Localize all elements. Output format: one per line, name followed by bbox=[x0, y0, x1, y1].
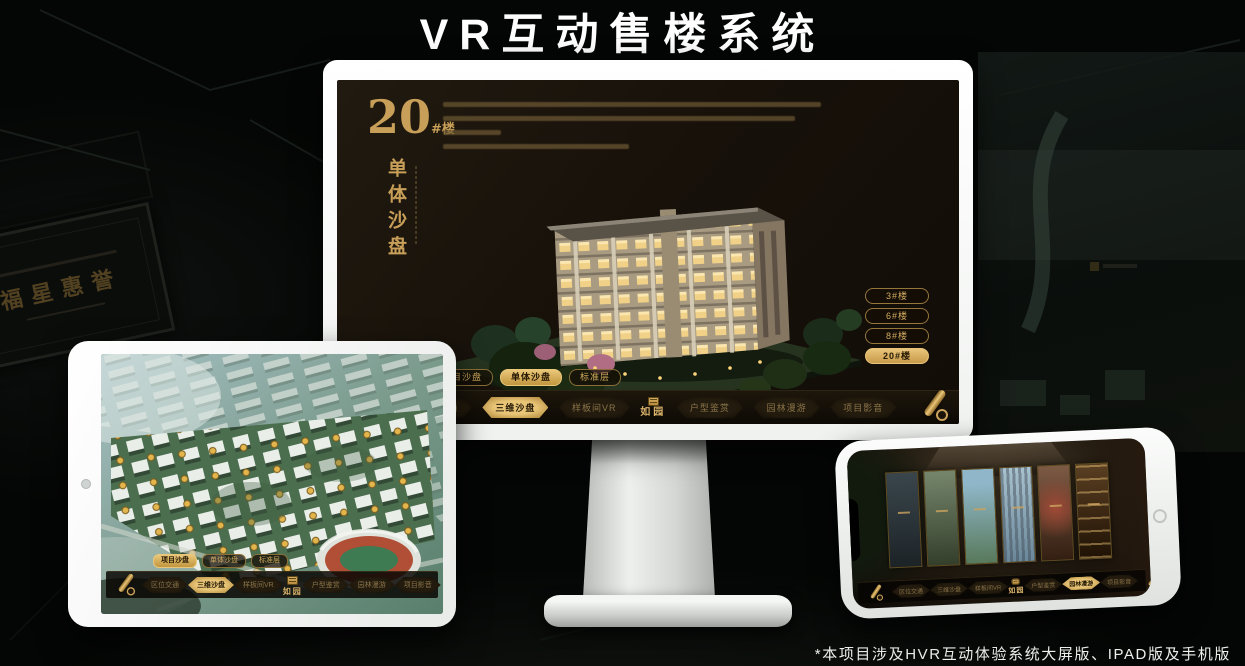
floor-button-group: 3#楼 6#楼 8#楼 20#楼 bbox=[865, 288, 929, 364]
tablet-nav-item-location[interactable]: 区位交通 bbox=[142, 577, 188, 593]
floor-button-8[interactable]: 8#楼 bbox=[865, 328, 929, 344]
subtab-standard-floor[interactable]: 标准层 bbox=[569, 369, 621, 386]
block-subtitle-english bbox=[415, 166, 417, 244]
nav-item-3d-sandtable[interactable]: 三维沙盘 bbox=[482, 397, 548, 418]
floor-button-6[interactable]: 6#楼 bbox=[865, 308, 929, 324]
phone-nav-item-3d-sandtable[interactable]: 三维沙盘 bbox=[930, 582, 969, 597]
tablet-nav-item-floorplan[interactable]: 户型鉴赏 bbox=[303, 577, 349, 593]
tablet-subtab-standard-floor[interactable]: 标准层 bbox=[251, 554, 288, 568]
tablet-nav-item-project-video[interactable]: 项目影音 bbox=[395, 577, 441, 593]
phone-screen: 区位交通 三维沙盘 样板间VR 如园 户型鉴赏 园林漫游 项目影音 bbox=[847, 438, 1152, 609]
phone-brand-seal-icon bbox=[1012, 579, 1020, 585]
tablet-screen: 项目沙盘 单体沙盘 标准层 区位交通 三维沙盘 样板间VR 如园 户型鉴赏 园林… bbox=[101, 354, 443, 614]
background-mini-logo bbox=[1090, 262, 1099, 271]
phone-menu-scroll-left-icon[interactable] bbox=[867, 583, 884, 601]
plaque-text: 福星惠誉 bbox=[0, 259, 125, 316]
nav-item-garden-tour[interactable]: 园林漫游 bbox=[754, 397, 820, 418]
gallery-panel-4[interactable] bbox=[999, 466, 1036, 563]
phone-camera-icon bbox=[1153, 509, 1168, 524]
tablet-brand-logo[interactable]: 如园 bbox=[283, 576, 303, 595]
tablet-nav-item-model-room-vr[interactable]: 样板间VR bbox=[234, 577, 283, 593]
brand-seal-icon bbox=[648, 397, 659, 406]
description-paragraph bbox=[443, 102, 843, 158]
subtab-single-sandtable[interactable]: 单体沙盘 bbox=[500, 369, 562, 386]
tablet-subtab-row: 项目沙盘 单体沙盘 标准层 bbox=[153, 554, 288, 568]
tablet-brand-seal-icon bbox=[287, 576, 298, 585]
block-title: 20#楼 bbox=[367, 94, 455, 140]
phone-nav-item-garden-tour[interactable]: 园林漫游 bbox=[1062, 576, 1101, 591]
tablet-nav-item-garden-tour[interactable]: 园林漫游 bbox=[349, 577, 395, 593]
phone-nav-item-floorplan[interactable]: 户型鉴赏 bbox=[1024, 578, 1063, 593]
footnote: *本项目涉及HVR互动体验系统大屏版、IPAD版及手机版 bbox=[815, 643, 1231, 664]
tablet-subtab-single-sandtable[interactable]: 单体沙盘 bbox=[202, 554, 246, 568]
tablet-menu-scroll-left-icon[interactable] bbox=[115, 573, 137, 597]
tablet-nav-bar: 区位交通 三维沙盘 样板间VR 如园 户型鉴赏 园林漫游 项目影音 bbox=[106, 571, 438, 598]
gallery-panel-5[interactable] bbox=[1037, 464, 1074, 561]
gallery-panel-3[interactable] bbox=[961, 468, 998, 565]
nav-item-model-room-vr[interactable]: 样板间VR bbox=[559, 397, 630, 418]
menu-scroll-icon[interactable] bbox=[919, 389, 951, 423]
nav-item-project-video[interactable]: 项目影音 bbox=[830, 397, 896, 418]
floor-button-3[interactable]: 3#楼 bbox=[865, 288, 929, 304]
brand-logo[interactable]: 如园 bbox=[640, 397, 666, 418]
monitor-stand-neck bbox=[583, 438, 715, 598]
tablet-subtab-project-sandtable[interactable]: 项目沙盘 bbox=[153, 554, 197, 568]
monitor-stand-base bbox=[544, 595, 792, 627]
page-title: VR互动售楼系统 bbox=[0, 0, 1245, 62]
phone-device: 区位交通 三维沙盘 样板间VR 如园 户型鉴赏 园林漫游 项目影音 bbox=[834, 426, 1182, 619]
block-number: 20 bbox=[367, 90, 431, 144]
phone-menu-scroll-right-icon[interactable] bbox=[1145, 571, 1151, 589]
phone-brand-logo-text: 如园 bbox=[1008, 586, 1024, 594]
tablet-camera-icon bbox=[81, 479, 91, 489]
block-subtitle-vertical: 单体沙盘 bbox=[383, 158, 410, 262]
stage: 福星惠誉 VR互动售楼系统 20#楼 单体沙盘 bbox=[0, 0, 1245, 666]
brand-logo-text: 如园 bbox=[640, 408, 666, 418]
phone-nav-item-model-room-vr[interactable]: 样板间VR bbox=[968, 580, 1009, 595]
gallery-panel-1[interactable] bbox=[885, 471, 922, 568]
phone-nav-item-project-video[interactable]: 项目影音 bbox=[1100, 574, 1139, 589]
gallery-panel-2[interactable] bbox=[923, 469, 960, 566]
floor-button-20[interactable]: 20#楼 bbox=[865, 348, 929, 364]
gallery-panel-6[interactable] bbox=[1075, 462, 1112, 559]
tablet-brand-logo-text: 如园 bbox=[283, 587, 303, 595]
phone-nav-item-location[interactable]: 区位交通 bbox=[892, 584, 931, 599]
monitor-subtab-row: 项目沙盘 单体沙盘 标准层 bbox=[431, 369, 621, 386]
tablet-device: 项目沙盘 单体沙盘 标准层 区位交通 三维沙盘 样板间VR 如园 户型鉴赏 园林… bbox=[68, 341, 456, 627]
gallery-panels bbox=[885, 462, 1112, 568]
tablet-nav-item-3d-sandtable[interactable]: 三维沙盘 bbox=[188, 577, 234, 593]
phone-brand-logo[interactable]: 如园 bbox=[1008, 578, 1025, 594]
nav-item-floorplan[interactable]: 户型鉴赏 bbox=[677, 397, 743, 418]
